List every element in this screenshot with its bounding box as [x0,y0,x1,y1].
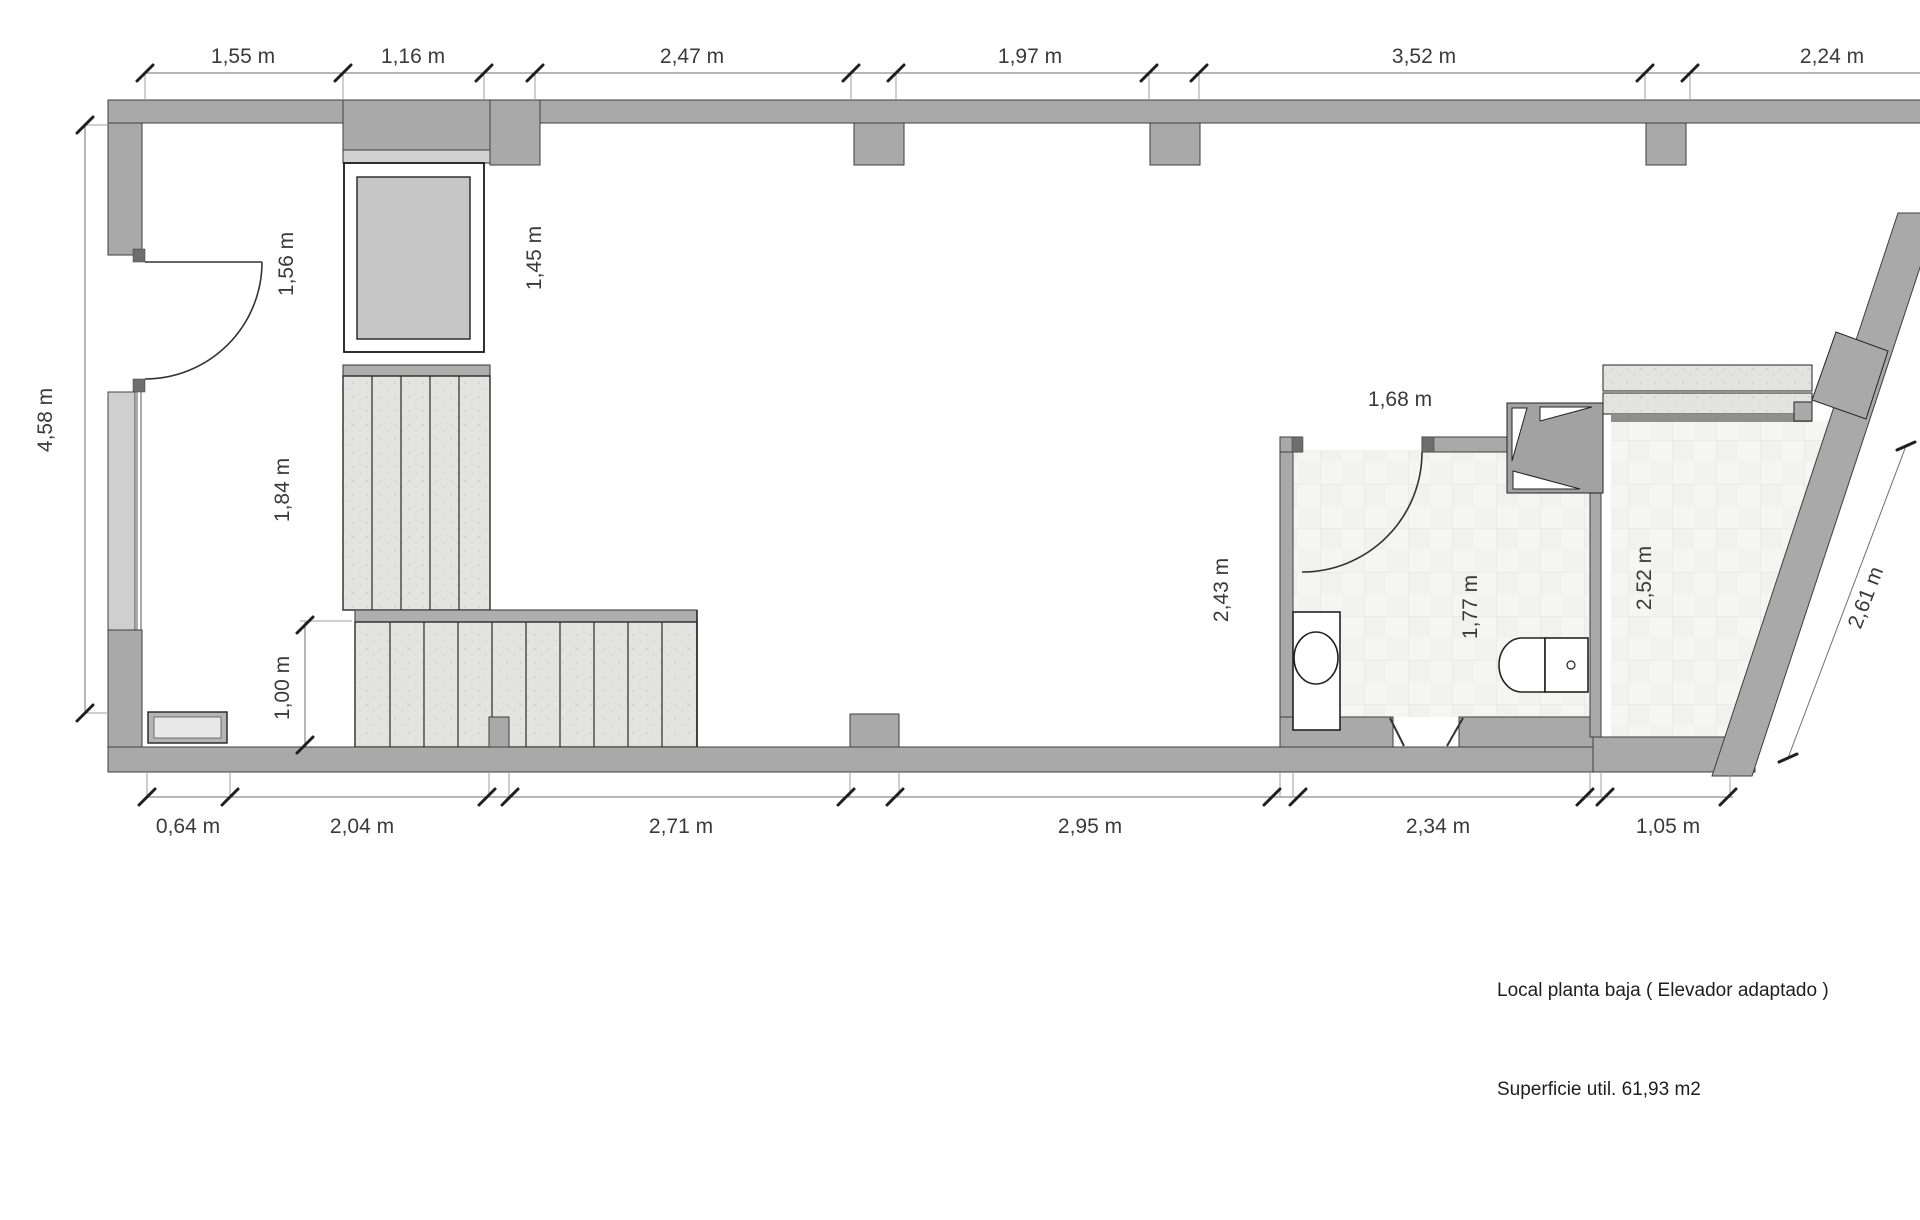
dim-bottom-1: 0,64 m [156,815,220,838]
dim-left-height: 4,58 m [34,388,57,452]
elevator [343,150,490,352]
dim-rest-width: 2,52 m [1633,546,1656,610]
rest-zone-bench [1603,332,1888,422]
top-wall-elevator-block [343,100,490,150]
dim-top-2: 1,16 m [381,45,445,68]
bench-connector [1794,402,1812,421]
column-2 [1150,123,1200,165]
elevator-car [357,177,470,339]
dimension-labels: 1,55 m 1,16 m 2,47 m 1,97 m 3,52 m 2,24 … [34,45,1888,838]
column-1 [854,123,904,165]
dim-bottom-2: 2,04 m [330,815,394,838]
toilet-flush-button [1567,661,1575,669]
top-wall-pier [490,100,540,165]
dim-hall-door: 1,56 m [275,232,298,296]
dim-bottom-5: 2,34 m [1406,815,1470,838]
dim-top-1: 1,55 m [211,45,275,68]
bathroom-door-jamb-left [1292,437,1303,452]
floor-plan-page: 1,55 m 1,16 m 2,47 m 1,97 m 3,52 m 2,24 … [0,0,1920,1220]
toilet-bowl [1499,638,1545,692]
bathroom-bottom-wall-right [1459,717,1593,747]
dim-bath-height: 2,43 m [1210,558,1233,622]
stair-upper-flight [343,376,490,610]
dim-rest-slant: 2,61 m [1844,564,1888,632]
column-3 [1646,123,1686,165]
dim-bottom-4: 2,95 m [1058,815,1122,838]
legend-room-list: Hall entrada 7,55 m2 Baño 1 4,78 m2 Esca… [1497,1210,1829,1220]
sink-basin [1294,632,1338,684]
dim-bottom-6: 1,05 m [1636,815,1700,838]
staircase [343,365,697,772]
bathroom-top-wall-right [1422,437,1507,452]
elevator-door-strip [343,150,490,163]
legend: Local planta baja ( Elevador adaptado ) … [1497,908,1829,1220]
dim-top-3: 2,47 m [660,45,724,68]
bench-wall-line [1611,415,1812,422]
dim-bath-inner: 1,77 m [1459,575,1482,639]
bottom-column-1 [489,717,509,747]
stair-landing-band [343,365,490,376]
dim-top-4: 1,97 m [998,45,1062,68]
bench-strip-2 [1603,393,1812,414]
entrance-door-arc [145,262,262,379]
bathroom-left-wall [1280,450,1293,717]
bottom-column-2 [850,714,899,747]
legend-subtitle: Superficie util. 61,93 m2 [1497,1073,1829,1106]
dim-elevator-width: 1,45 m [523,226,546,290]
radiator-inner [154,717,221,738]
entrance-jamb-top [133,249,145,262]
bench-strip-1 [1603,365,1812,391]
dim-top-5: 3,52 m [1392,45,1456,68]
dim-stair-lower: 1,00 m [271,656,294,720]
dim-top-6: 2,24 m [1800,45,1864,68]
dim-bottom-3: 2,71 m [649,815,713,838]
bathroom-door-jamb-right [1422,437,1434,452]
bottom-wall [108,747,1755,772]
left-wall-top [108,123,142,255]
closet-block [1507,403,1603,493]
dim-stair-upper: 1,84 m [271,458,294,522]
legend-title: Local planta baja ( Elevador adaptado ) [1497,974,1829,1007]
left-window [108,392,135,630]
bathroom-right-wall [1590,493,1601,737]
entrance-jamb-bottom [133,379,145,392]
stair-mid-band [355,610,697,622]
dim-bath-width: 1,68 m [1368,388,1432,411]
